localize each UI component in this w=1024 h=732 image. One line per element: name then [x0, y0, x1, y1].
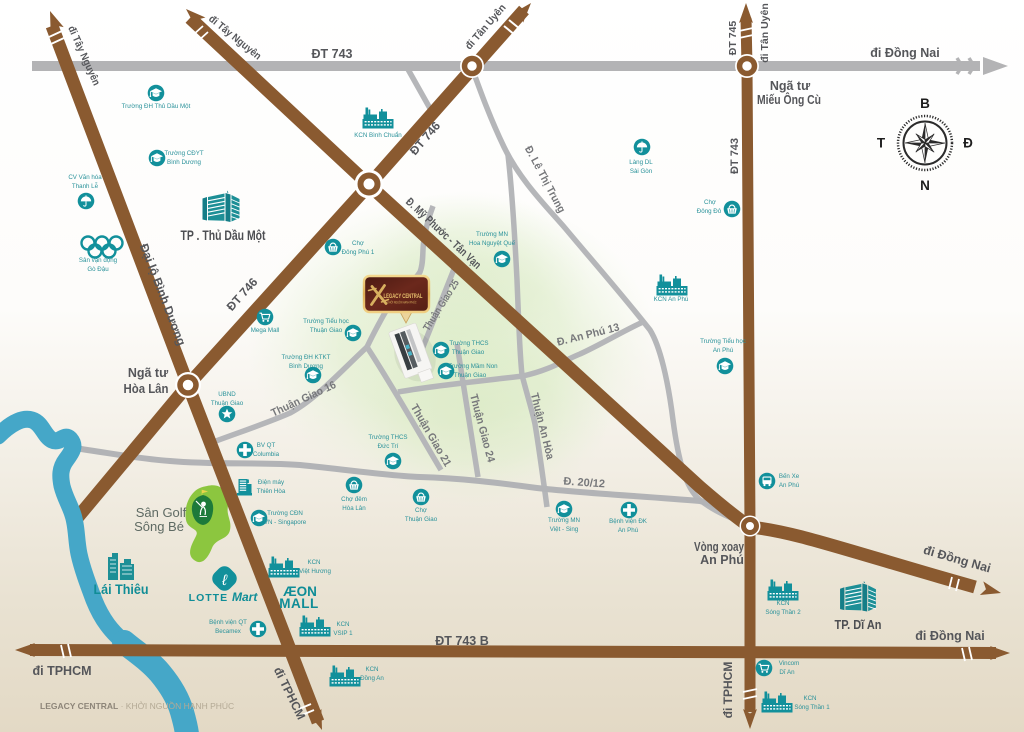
svg-text:LOTTE Mart: LOTTE Mart — [189, 590, 259, 604]
svg-text:KCN: KCN — [803, 695, 816, 702]
svg-text:KCN: KCN — [365, 666, 378, 673]
svg-text:An Phú: An Phú — [779, 482, 800, 489]
svg-text:Việt - Sing: Việt - Sing — [550, 526, 579, 533]
svg-text:Trường Tiểu học: Trường Tiểu học — [700, 338, 746, 345]
svg-text:CV Văn hóa: CV Văn hóa — [68, 174, 102, 181]
svg-text:đi TPHCM: đi TPHCM — [32, 664, 91, 678]
svg-text:đi Đồng Nai: đi Đồng Nai — [870, 46, 939, 60]
svg-text:Thiên Hòa: Thiên Hòa — [257, 488, 286, 495]
svg-text:TP . Thủ Dầu Một: TP . Thủ Dầu Một — [181, 227, 266, 243]
svg-text:Ngã tư: Ngã tư — [770, 79, 811, 93]
svg-text:VN - Singapore: VN - Singapore — [264, 519, 307, 526]
svg-text:Điện máy: Điện máy — [258, 479, 285, 486]
svg-text:Mega Mall: Mega Mall — [251, 327, 280, 334]
svg-text:Ngã tư: Ngã tư — [128, 366, 169, 380]
svg-text:Hoa Nguyệt Quế: Hoa Nguyệt Quế — [469, 240, 516, 247]
svg-text:Trường ĐH Thủ Dầu Một: Trường ĐH Thủ Dầu Một — [122, 103, 191, 110]
svg-text:Trường THCS: Trường THCS — [449, 340, 488, 347]
svg-text:KCN: KCN — [776, 600, 789, 607]
svg-text:Trường MN: Trường MN — [548, 517, 580, 524]
svg-text:Trường Mầm Non: Trường Mầm Non — [448, 363, 498, 370]
svg-text:Sóng Thần 2: Sóng Thần 2 — [765, 609, 801, 616]
svg-text:VSIP 1: VSIP 1 — [333, 630, 353, 637]
svg-text:Bến Xe: Bến Xe — [779, 473, 800, 480]
svg-text:LEGACY CENTRAL: LEGACY CENTRAL — [384, 293, 423, 300]
svg-text:KCN An Phú: KCN An Phú — [654, 296, 689, 303]
svg-text:Vincom: Vincom — [779, 660, 800, 667]
svg-text:đi Tân Uyên: đi Tân Uyên — [759, 3, 771, 63]
svg-text:Thuận Giao: Thuận Giao — [310, 327, 343, 334]
svg-text:ĐT 743: ĐT 743 — [312, 47, 353, 61]
svg-text:Trường Tiểu học: Trường Tiểu học — [303, 318, 349, 325]
svg-text:LEGACY CENTRAL · KHỞI NGUỒN HẠ: LEGACY CENTRAL · KHỞI NGUỒN HẠNH PHÚC — [40, 700, 234, 711]
svg-text:Sài Gòn: Sài Gòn — [630, 168, 653, 175]
svg-text:Hòa Lân: Hòa Lân — [124, 382, 169, 396]
svg-text:Trường ĐH KTKT: Trường ĐH KTKT — [282, 354, 331, 361]
svg-text:UBND: UBND — [218, 391, 236, 398]
svg-text:Columbia: Columbia — [253, 451, 280, 458]
svg-text:Chợ: Chợ — [352, 240, 364, 247]
svg-text:Sân Golf: Sân Golf — [136, 505, 187, 520]
svg-text:Lái Thiêu: Lái Thiêu — [94, 582, 149, 597]
svg-text:An Phú: An Phú — [713, 347, 734, 354]
svg-text:Trường CĐN: Trường CĐN — [267, 510, 303, 517]
svg-text:Trường CĐYT: Trường CĐYT — [164, 150, 203, 157]
svg-text:đi Đồng Nai: đi Đồng Nai — [915, 629, 984, 643]
svg-text:Đ: Đ — [963, 136, 973, 151]
svg-text:Chợ đêm: Chợ đêm — [341, 496, 367, 503]
svg-text:B: B — [920, 96, 930, 111]
svg-text:Bệnh viện ĐK: Bệnh viện ĐK — [609, 518, 648, 525]
svg-text:KCN Bình Chuẩn: KCN Bình Chuẩn — [354, 132, 402, 139]
svg-text:Thuận Giao: Thuận Giao — [405, 516, 438, 523]
svg-text:N: N — [920, 178, 930, 193]
svg-text:Bệnh viện QT: Bệnh viện QT — [209, 619, 247, 626]
svg-text:Sân vận động: Sân vận động — [79, 257, 118, 264]
svg-text:Vòng xoay: Vòng xoay — [694, 540, 744, 554]
svg-text:An Phú: An Phú — [700, 553, 744, 567]
svg-text:Việt Hương: Việt Hương — [299, 568, 331, 575]
svg-text:Đông Phú 1: Đông Phú 1 — [342, 249, 375, 256]
svg-text:Thuận Giao: Thuận Giao — [454, 372, 487, 379]
svg-text:ĐT 743: ĐT 743 — [729, 138, 741, 174]
svg-text:ĐT 743 B: ĐT 743 B — [435, 634, 489, 648]
svg-text:Gò Đậu: Gò Đậu — [87, 266, 109, 273]
svg-text:T: T — [877, 136, 886, 151]
svg-text:KCN: KCN — [336, 621, 349, 628]
svg-text:Trường THCS: Trường THCS — [368, 434, 407, 441]
svg-text:Bình Dương: Bình Dương — [167, 159, 202, 166]
svg-text:Bình Dương: Bình Dương — [289, 363, 324, 370]
svg-text:Dĩ An: Dĩ An — [779, 669, 795, 676]
svg-text:đi TPHCM: đi TPHCM — [721, 662, 735, 719]
svg-text:Chợ: Chợ — [415, 507, 427, 514]
svg-text:Làng DL: Làng DL — [629, 159, 653, 166]
svg-text:Becamex: Becamex — [215, 628, 242, 635]
svg-text:TP. Dĩ An: TP. Dĩ An — [835, 617, 882, 632]
svg-text:Sóng Thần 1: Sóng Thần 1 — [794, 704, 830, 711]
svg-text:Sông Bé: Sông Bé — [134, 519, 184, 534]
svg-text:Đông Đô: Đông Đô — [697, 208, 722, 215]
svg-text:KCN: KCN — [307, 559, 320, 566]
svg-text:Thuận Giao: Thuận Giao — [452, 349, 485, 356]
svg-text:An Phú: An Phú — [618, 527, 639, 534]
svg-text:Hòa Lân: Hòa Lân — [342, 505, 366, 512]
svg-text:Trường MN: Trường MN — [476, 231, 508, 238]
svg-text:Thuận Giao: Thuận Giao — [211, 400, 244, 407]
svg-text:Chợ: Chợ — [704, 199, 716, 206]
svg-text:Đức Trí: Đức Trí — [378, 443, 399, 450]
svg-text:ĐT 745: ĐT 745 — [727, 21, 739, 56]
svg-text:MALL: MALL — [279, 596, 319, 611]
svg-text:Miếu Ông Cù: Miếu Ông Cù — [757, 92, 821, 107]
svg-text:KHỞI NGUỒN HẠNH PHÚC: KHỞI NGUỒN HẠNH PHÚC — [388, 300, 417, 305]
svg-text:Thanh Lễ: Thanh Lễ — [72, 183, 99, 190]
svg-text:BV QT: BV QT — [257, 442, 276, 449]
svg-text:Đồng An: Đồng An — [360, 675, 384, 682]
